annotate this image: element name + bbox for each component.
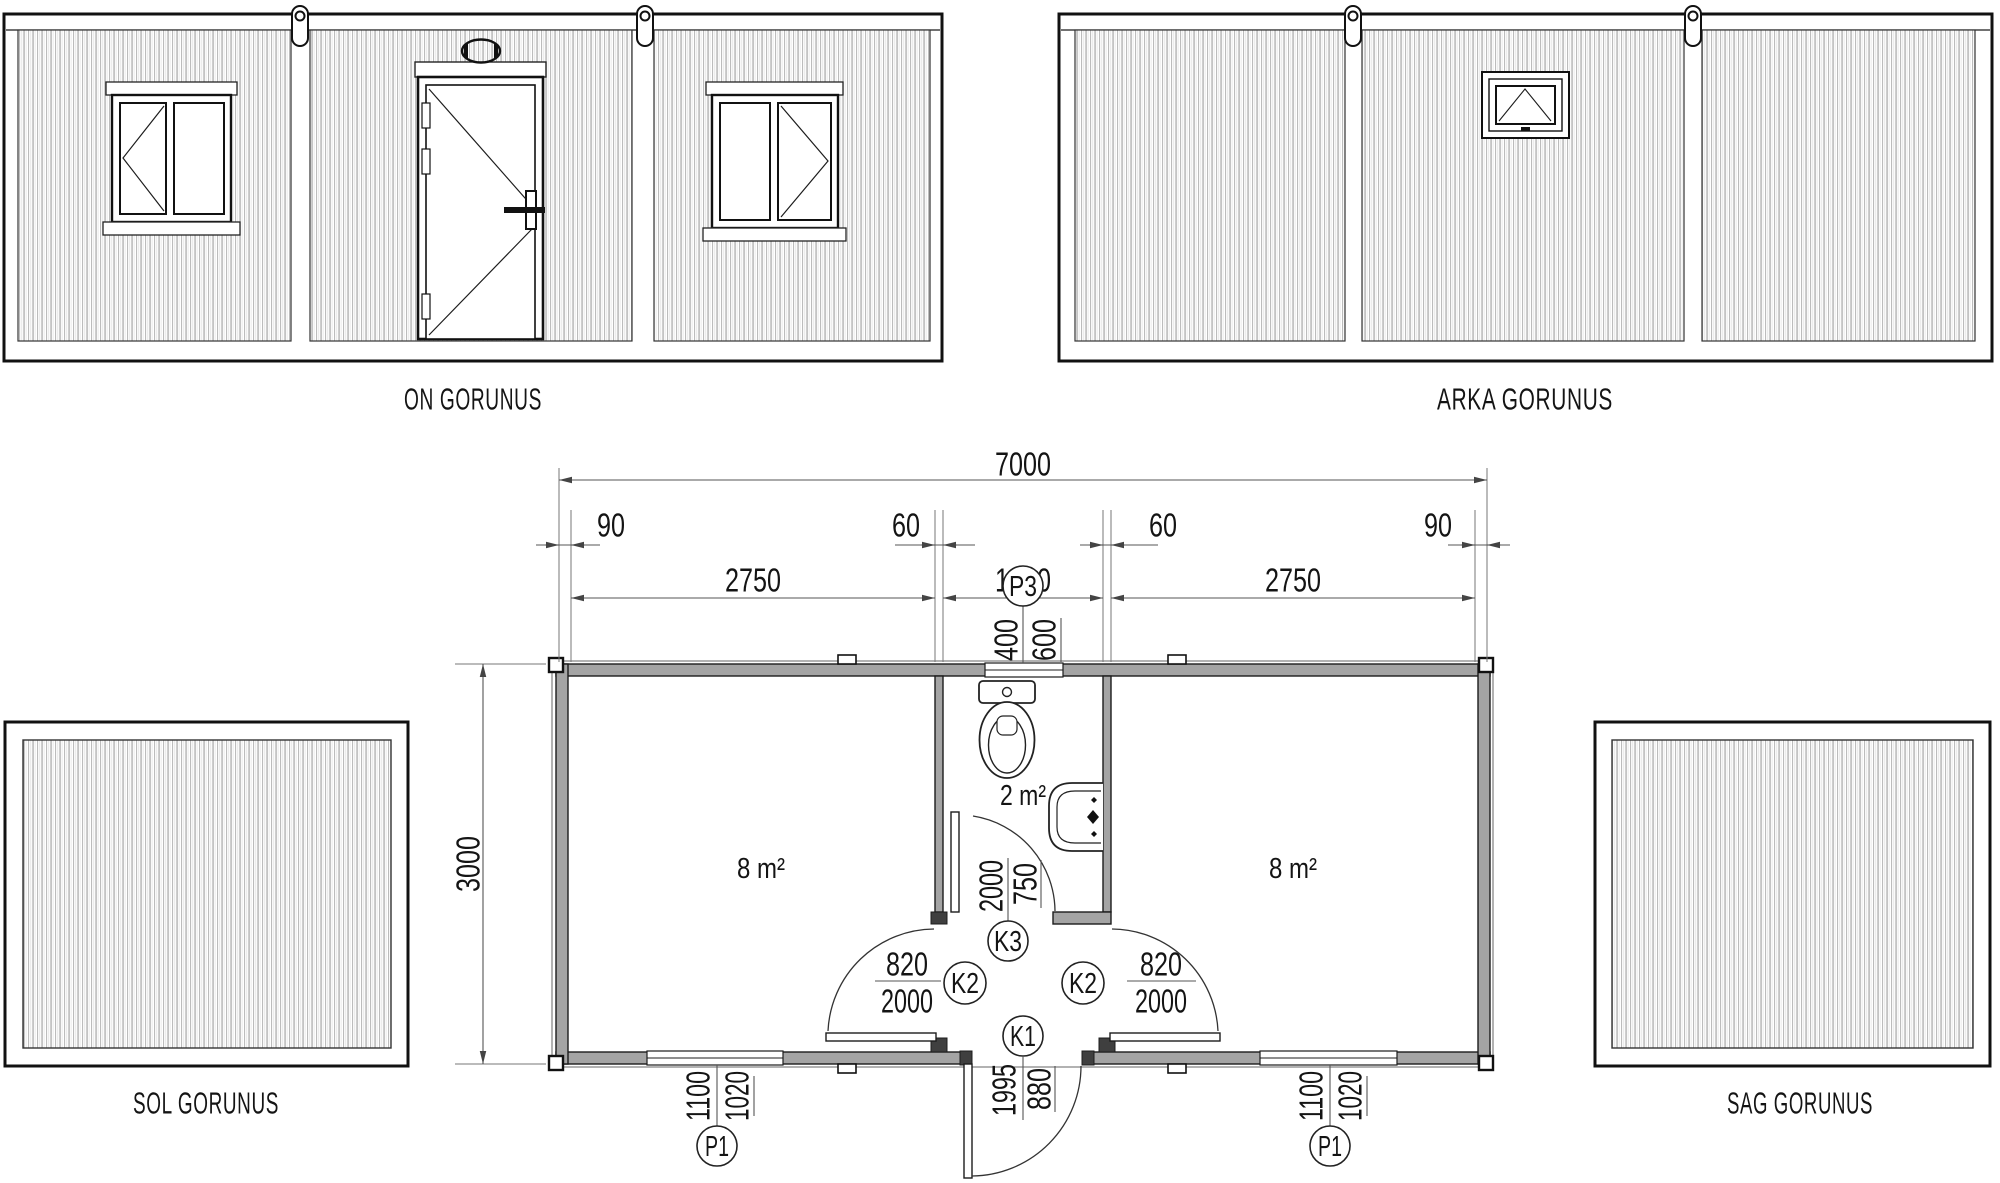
door-leaf-k2-right bbox=[1110, 1033, 1220, 1041]
dim-wall-left: 90 bbox=[597, 507, 625, 544]
corner-fitting-icon bbox=[549, 1056, 563, 1070]
p3-dim-width: 600 bbox=[1026, 619, 1063, 661]
lifting-lug-icon bbox=[292, 6, 308, 46]
partition-wall-right bbox=[1103, 676, 1111, 912]
room-area-right: 8 m² bbox=[1269, 853, 1317, 885]
p3-dim-height: 400 bbox=[988, 619, 1025, 661]
k2-right-dim-height: 2000 bbox=[1135, 983, 1187, 1020]
left-elevation: SOL GORUNUS bbox=[5, 722, 408, 1121]
window-symbol bbox=[703, 82, 846, 241]
wall-panel bbox=[1702, 30, 1975, 341]
back-view-title: ARKA GORUNUS bbox=[1437, 382, 1613, 417]
entrance-door bbox=[415, 62, 546, 339]
k3-dim-width: 750 bbox=[1007, 863, 1044, 905]
door-leaf-k2-left bbox=[826, 1033, 936, 1041]
bathroom-window-symbol bbox=[1482, 72, 1569, 138]
room-area-bath: 2 m² bbox=[1000, 780, 1046, 812]
right-view-title: SAG GORUNUS bbox=[1727, 1086, 1873, 1121]
dim-total-depth: 3000 bbox=[450, 836, 487, 892]
tag-k1: K1 1995 880 bbox=[986, 1016, 1058, 1120]
tag-k3: K3 2000 750 bbox=[973, 858, 1044, 961]
front-view-title: ON GORUNUS bbox=[404, 382, 542, 417]
plan-window-p1-left bbox=[647, 1051, 783, 1065]
right-elevation: SAG GORUNUS bbox=[1595, 722, 1990, 1121]
plan-window-p1-right bbox=[1260, 1051, 1397, 1065]
tag-k1-label: K1 bbox=[1010, 1021, 1036, 1053]
lifting-lug-icon bbox=[1345, 6, 1361, 46]
wall-panel bbox=[23, 740, 391, 1048]
drawing-canvas: ON GORUNUS ARKA GORUNUS SOL GORUNUS bbox=[0, 0, 2000, 1183]
panel-joint-mark bbox=[838, 655, 856, 664]
tag-p1-left-label: P1 bbox=[705, 1131, 729, 1163]
panel-joint-mark bbox=[838, 1064, 856, 1073]
left-view-title: SOL GORUNUS bbox=[133, 1086, 279, 1121]
sink-symbol bbox=[1049, 783, 1103, 851]
tag-k2-right-label: K2 bbox=[1069, 968, 1097, 1000]
door-jamb bbox=[960, 1051, 972, 1065]
p1-right-dim-width: 1020 bbox=[1332, 1071, 1369, 1121]
k1-dim-height: 1995 bbox=[986, 1064, 1023, 1116]
k2-left-dim-height: 2000 bbox=[881, 983, 933, 1020]
door-leaf-k3 bbox=[951, 812, 959, 912]
door-lintel bbox=[415, 62, 546, 77]
corner-fitting-icon bbox=[1479, 1056, 1493, 1070]
exterior-wall-left bbox=[556, 664, 568, 1064]
p1-left-dim-offset: 1100 bbox=[680, 1071, 717, 1121]
panel-joint-mark bbox=[1168, 1064, 1186, 1073]
dim-room-right: 2750 bbox=[1265, 562, 1321, 599]
p1-right-dim-offset: 1100 bbox=[1293, 1071, 1330, 1121]
architectural-drawing-sheet: ON GORUNUS ARKA GORUNUS SOL GORUNUS bbox=[0, 0, 2000, 1183]
lamp-icon bbox=[462, 40, 500, 63]
corner-fitting-icon bbox=[1479, 658, 1493, 672]
tag-k3-label: K3 bbox=[994, 926, 1022, 958]
plan-window-p3 bbox=[985, 663, 1063, 677]
hinge-icon bbox=[422, 294, 430, 319]
k2-left-dim-width: 820 bbox=[886, 946, 928, 983]
partition-wall-left bbox=[935, 676, 943, 912]
dim-wall-right: 90 bbox=[1424, 507, 1452, 544]
panel-joint-mark bbox=[1168, 655, 1186, 664]
wall-panel bbox=[1612, 740, 1973, 1048]
tag-k2-left-label: K2 bbox=[951, 968, 979, 1000]
dim-partition-left: 60 bbox=[892, 507, 920, 544]
tag-p1-left: P1 1100 1020 bbox=[680, 1065, 756, 1166]
window-handle-icon bbox=[1521, 127, 1530, 131]
dim-room-left: 2750 bbox=[725, 562, 781, 599]
hinge-icon bbox=[422, 149, 430, 174]
tag-k2-right: K2 820 2000 bbox=[1062, 946, 1196, 1020]
tag-p1-right: P1 1100 1020 bbox=[1293, 1065, 1369, 1166]
tag-k2-left: K2 820 2000 bbox=[875, 946, 986, 1020]
k1-dim-width: 880 bbox=[1021, 1068, 1058, 1110]
p1-left-dim-width: 1020 bbox=[719, 1071, 756, 1121]
k2-right-dim-width: 820 bbox=[1140, 946, 1182, 983]
door-jamb bbox=[1082, 1051, 1094, 1065]
hinge-icon bbox=[422, 103, 430, 128]
tag-p1-right-label: P1 bbox=[1318, 1131, 1342, 1163]
exterior-wall-right bbox=[1478, 664, 1490, 1064]
dim-total-width: 7000 bbox=[995, 446, 1051, 483]
corner-fitting-icon bbox=[549, 658, 563, 672]
window-symbol bbox=[103, 82, 240, 235]
wall-panel bbox=[1075, 30, 1345, 341]
window-sill bbox=[103, 222, 240, 235]
dim-partition-right: 60 bbox=[1149, 507, 1177, 544]
window-sill bbox=[703, 228, 846, 241]
room-area-left: 8 m² bbox=[737, 853, 785, 885]
bath-south-wall-stub bbox=[1053, 912, 1111, 924]
tag-p3-label: P3 bbox=[1009, 571, 1037, 603]
toilet-symbol bbox=[979, 681, 1035, 778]
lifting-lug-icon bbox=[1685, 6, 1701, 46]
back-elevation: ARKA GORUNUS bbox=[1059, 6, 1992, 417]
k3-dim-height: 2000 bbox=[973, 860, 1010, 912]
door-leaf-k1 bbox=[964, 1064, 972, 1178]
lifting-lug-icon bbox=[637, 6, 653, 46]
front-elevation: ON GORUNUS bbox=[4, 6, 942, 417]
wall-end-cap bbox=[931, 912, 947, 924]
